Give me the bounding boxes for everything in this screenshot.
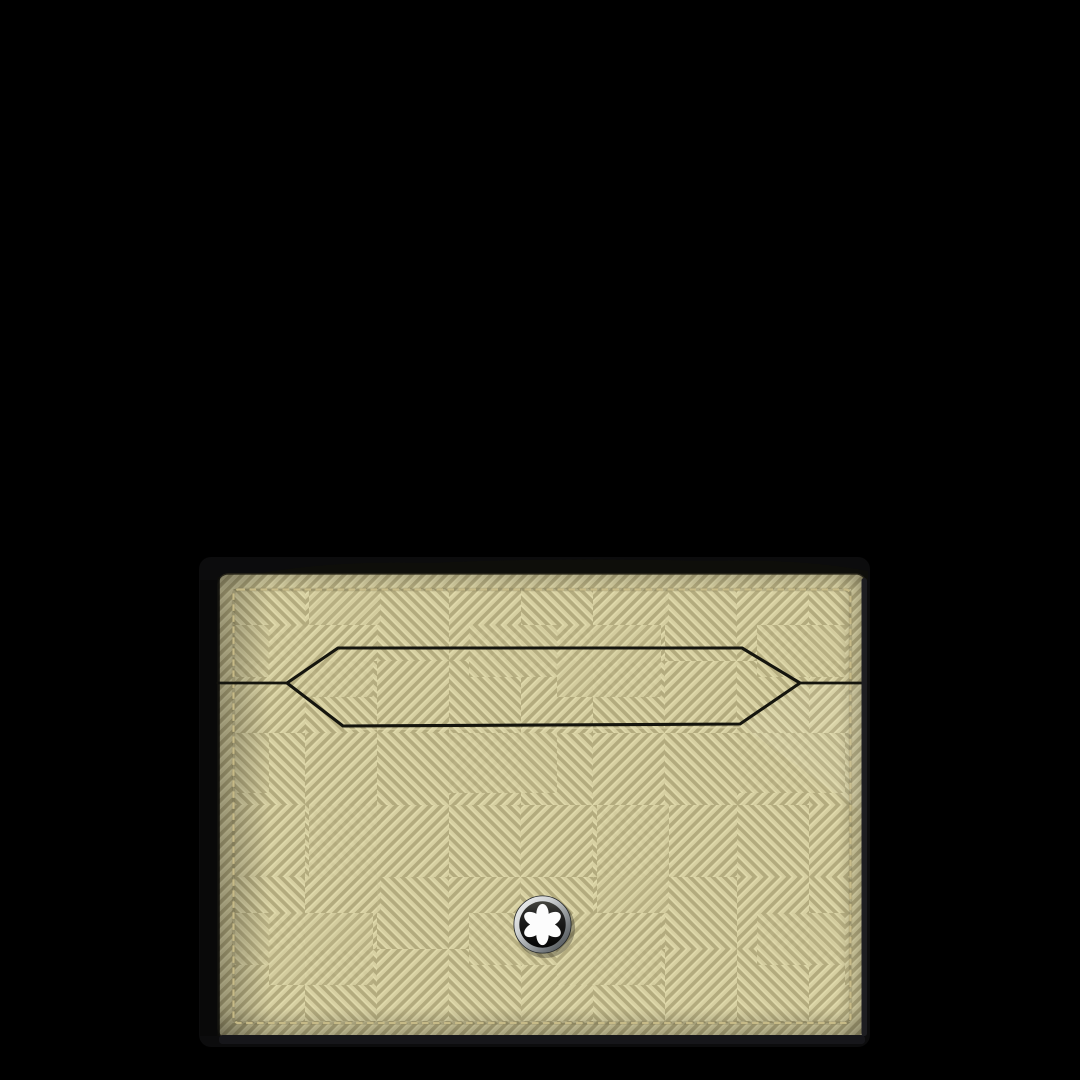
texture-checker-overlay — [233, 589, 851, 1023]
left-shadow — [218, 574, 270, 1039]
scene — [0, 0, 1080, 1080]
card-body — [218, 574, 866, 1039]
product-photo — [0, 0, 1080, 1080]
